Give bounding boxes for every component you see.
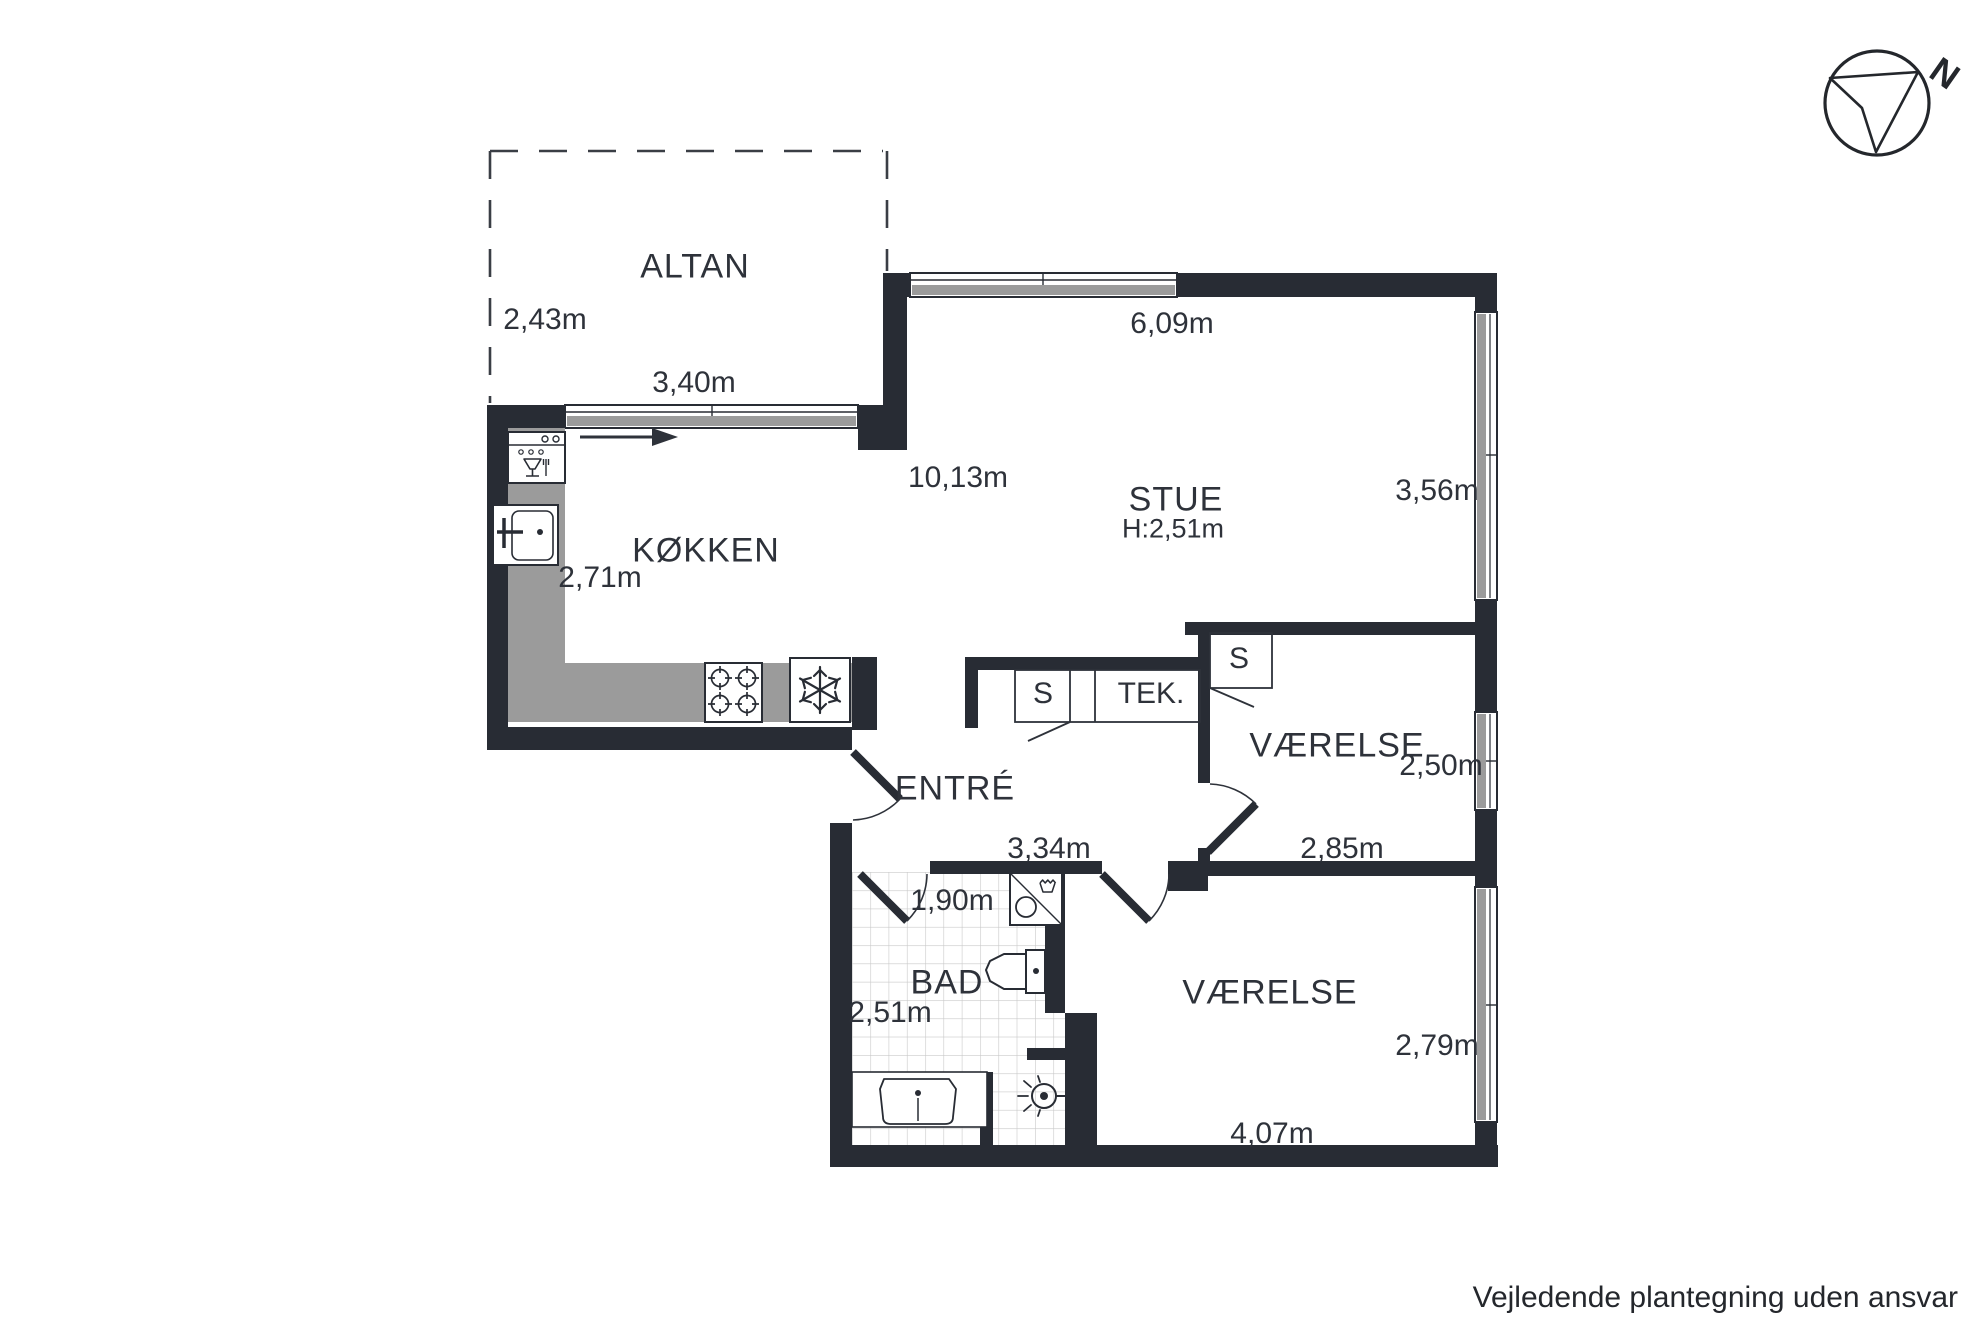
closet-s-vaerelse-top [1210,633,1272,707]
vaerelse-bottom-window [1475,887,1497,1122]
vaerelse-bottom-door [1102,874,1169,921]
floor-plan-drawing: N [0,0,1984,1323]
kitchen-sink-icon [493,505,558,565]
floor-plan-page: N ALTAN2,43m3,40m6,09m10,13mSTUEH:2,51m3… [0,0,1984,1323]
stue-right-window [1475,312,1497,600]
washing-machine-icon [1010,873,1062,925]
stove-icon [705,663,762,722]
direction-arrow [580,428,678,446]
entrance-door [853,752,900,820]
stue-top-window [910,273,1177,297]
compass-north-label: N [1923,49,1968,97]
dishwasher-icon [508,432,565,483]
vaerelse-top-door [1208,784,1256,852]
closet-tek-and-s [1015,670,1200,741]
compass: N [1825,49,1967,155]
vanity-sink-icon [852,1072,987,1127]
freezer-icon [790,658,850,722]
compass-needle-icon [1830,72,1918,152]
disclaimer-text: Vejledende plantegning uden ansvar [1473,1281,1958,1315]
closets [1015,633,1272,741]
balcony-dashed-outline [490,151,887,403]
balcony-door-window [565,405,858,428]
vaerelse-top-window [1475,712,1497,810]
